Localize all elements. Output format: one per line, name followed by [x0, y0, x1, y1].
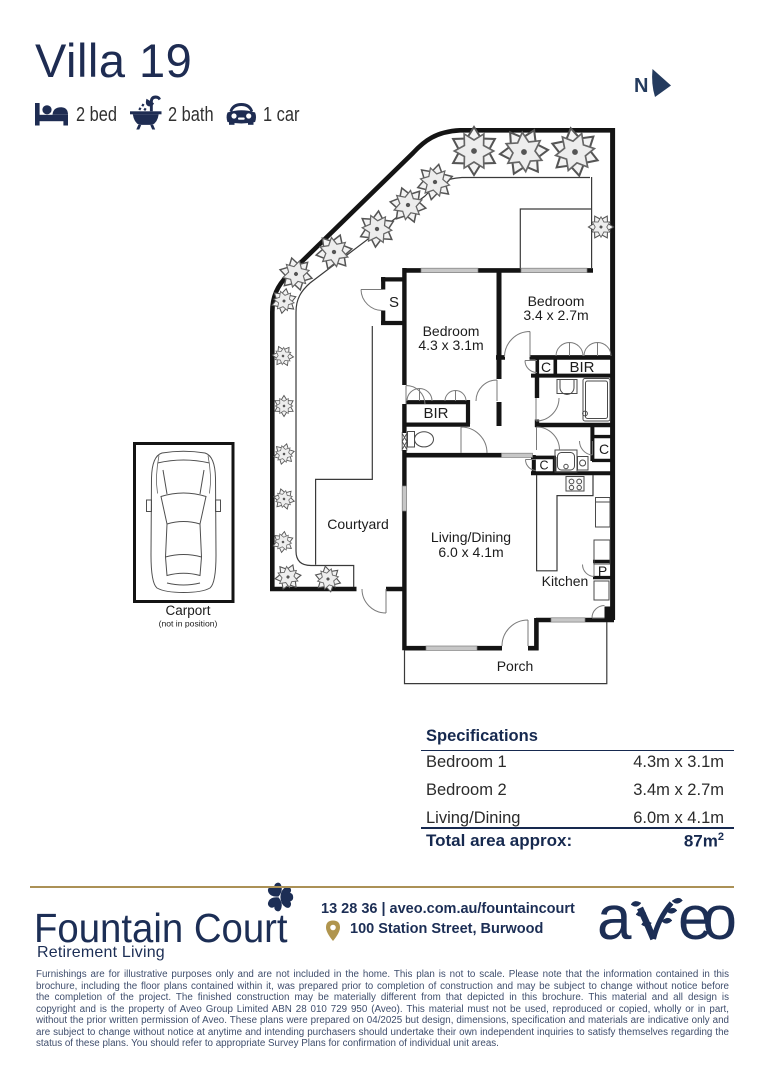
svg-text:4.3 x 3.1m: 4.3 x 3.1m: [418, 337, 483, 353]
svg-text:BIR: BIR: [423, 405, 448, 422]
svg-text:Carport: Carport: [165, 603, 210, 618]
svg-text:C: C: [599, 441, 609, 457]
svg-text:N: N: [634, 75, 648, 97]
svg-text:(not in position): (not in position): [159, 619, 218, 629]
svg-text:Courtyard: Courtyard: [327, 516, 388, 532]
svg-text:C: C: [541, 359, 551, 375]
svg-text:a: a: [597, 884, 632, 953]
svg-text:Living/Dining: Living/Dining: [431, 529, 511, 545]
svg-text:6.0 x 4.1m: 6.0 x 4.1m: [438, 544, 503, 560]
svg-text:S: S: [389, 294, 399, 311]
svg-text:C: C: [539, 459, 548, 473]
svg-text:3.4 x 2.7m: 3.4 x 2.7m: [523, 307, 588, 323]
svg-text:eo: eo: [678, 884, 738, 953]
svg-text:Porch: Porch: [497, 658, 534, 674]
svg-text:BIR: BIR: [569, 359, 594, 376]
svg-text:Kitchen: Kitchen: [542, 573, 589, 589]
svg-text:P: P: [598, 563, 607, 579]
